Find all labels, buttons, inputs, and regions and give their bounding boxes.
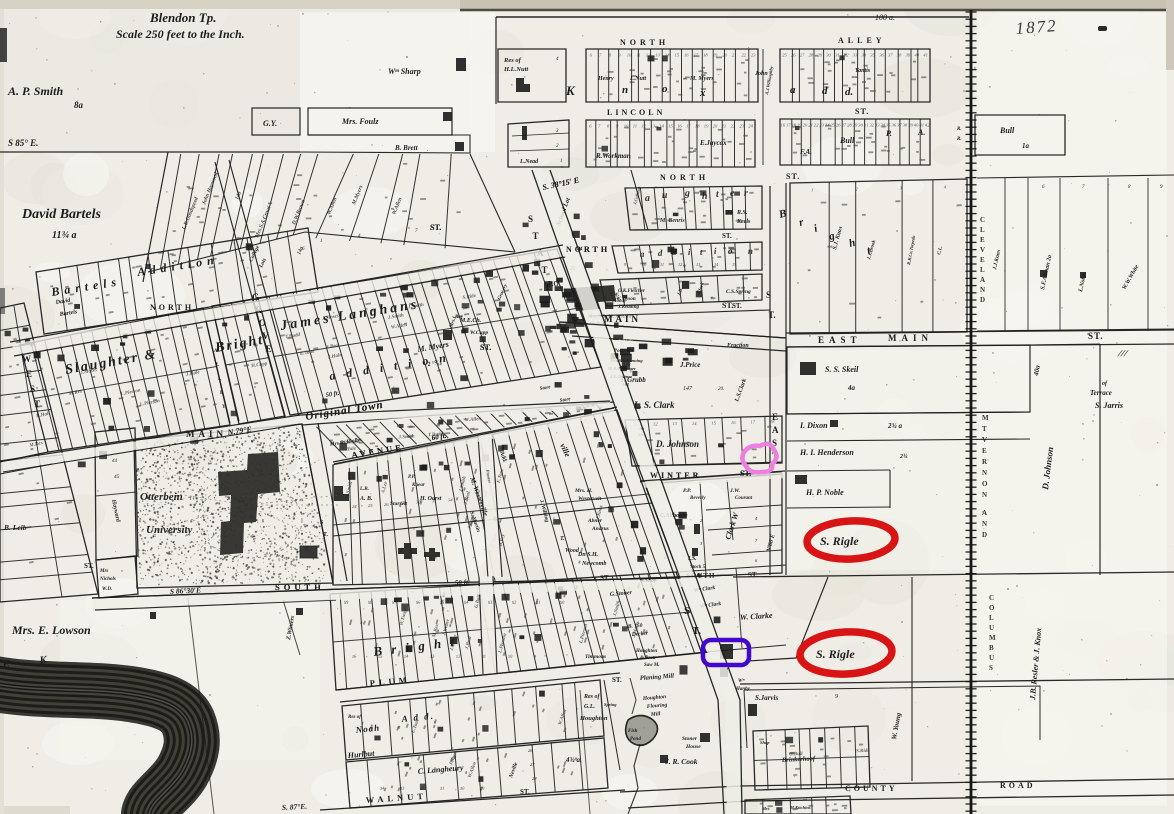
svg-text:28: 28 [532, 776, 537, 781]
svg-text:C.S.Spring: C.S.Spring [726, 289, 751, 295]
svg-text:u: u [662, 190, 668, 201]
svg-text:31: 31 [440, 786, 445, 791]
svg-text:S. Rigle: S. Rigle [820, 534, 859, 548]
svg-text:1: 1 [811, 188, 813, 193]
svg-text:32: 32 [869, 122, 874, 127]
svg-text:J.W.: J.W. [729, 488, 740, 494]
svg-text:Shop: Shop [760, 740, 770, 745]
svg-text:22: 22 [741, 52, 746, 57]
svg-text:Houghton: Houghton [635, 649, 657, 654]
svg-text:36: 36 [892, 122, 897, 127]
svg-text:35: 35 [464, 496, 469, 501]
svg-text:23: 23 [751, 52, 756, 57]
svg-text:2¾ a: 2¾ a [887, 422, 903, 430]
svg-text:Mrs. Foulz: Mrs. Foulz [341, 117, 379, 126]
svg-text:MAIN: MAIN [186, 429, 227, 439]
svg-text:ST.: ST. [855, 107, 869, 116]
svg-text:Terrace: Terrace [1090, 389, 1112, 397]
svg-text:J.Price: J.Price [679, 361, 700, 369]
svg-text:Abner: Abner [587, 518, 603, 524]
svg-text:4a: 4a [847, 384, 856, 392]
svg-text:Spring: Spring [604, 702, 617, 707]
svg-text:T: T [533, 231, 539, 241]
svg-text:E.Jaycox: E.Jaycox [699, 139, 727, 147]
svg-text:33: 33 [853, 52, 858, 57]
svg-text:W. Dyson: W. Dyson [616, 297, 636, 302]
svg-text:H. I. Henderson: H. I. Henderson [799, 448, 854, 457]
svg-text:17: 17 [786, 122, 791, 127]
svg-text:T.: T. [768, 310, 776, 320]
svg-text:12: 12 [653, 422, 658, 427]
svg-text:o: o [662, 83, 668, 95]
svg-text:ST.: ST. [722, 232, 732, 240]
svg-text:22: 22 [814, 122, 819, 127]
svg-text:Houghton: Houghton [579, 715, 608, 722]
svg-text:17: 17 [686, 124, 691, 129]
svg-text:29: 29 [853, 122, 858, 127]
svg-text:40: 40 [914, 122, 919, 127]
svg-text:16: 16 [677, 124, 682, 129]
svg-text:Fish: Fish [628, 729, 638, 734]
svg-text:19: 19 [704, 124, 709, 129]
svg-text:Nichols: Nichols [99, 577, 116, 582]
svg-text:T: T [542, 265, 548, 275]
svg-text:28: 28 [847, 122, 852, 127]
svg-text:g: g [684, 188, 690, 199]
svg-text:ST.: ST. [84, 562, 94, 570]
svg-text:Stoner: Stoner [682, 736, 698, 742]
svg-text:14: 14 [659, 124, 664, 129]
svg-text:M: M [982, 414, 989, 422]
svg-text:32: 32 [844, 52, 849, 57]
svg-text:N: N [982, 520, 987, 528]
svg-text:Mrs. H.: Mrs. H. [574, 488, 593, 494]
svg-text:Bull: Bull [839, 136, 855, 145]
svg-text:18: 18 [703, 52, 708, 57]
svg-text:P.: P. [886, 129, 892, 138]
svg-text:Mrs. E. Lowson: Mrs. E. Lowson [11, 623, 91, 637]
svg-text:MAIN: MAIN [888, 333, 933, 343]
svg-text:x: x [699, 87, 706, 99]
svg-text:24: 24 [352, 504, 357, 509]
svg-text:S.Rigle: S.Rigle [618, 340, 634, 345]
svg-text:28: 28 [809, 52, 814, 57]
svg-text:L.Nutt: L.Nutt [629, 76, 647, 82]
svg-text:19: 19 [713, 52, 718, 57]
svg-text:36: 36 [879, 52, 884, 57]
svg-text:ROAD: ROAD [1000, 781, 1036, 790]
svg-text:37: 37 [888, 52, 893, 57]
svg-text:S 85° E.: S 85° E. [8, 138, 38, 148]
svg-text:B. Leib: B. Leib [3, 523, 27, 532]
svg-text:Res of: Res of [583, 694, 601, 700]
svg-text:13: 13 [696, 262, 700, 267]
svg-text:26: 26 [528, 748, 533, 753]
svg-text:Westervelt: Westervelt [578, 496, 602, 502]
svg-text:A: A [772, 425, 779, 435]
svg-text:25: 25 [782, 52, 787, 57]
svg-text:18: 18 [695, 124, 700, 129]
svg-text:G.L.: G.L. [584, 704, 595, 710]
svg-text:38: 38 [897, 52, 902, 57]
svg-text:H.L.Nutt: H.L.Nutt [503, 66, 528, 73]
svg-text:L: L [980, 266, 985, 274]
svg-text:ST.: ST. [732, 302, 742, 310]
svg-text:K: K [565, 83, 576, 98]
svg-text:Knear: Knear [411, 483, 425, 488]
svg-text:1872: 1872 [1015, 16, 1058, 38]
svg-text:40: 40 [915, 52, 920, 57]
svg-text:S. S. Skeil: S. S. Skeil [825, 365, 859, 374]
svg-text:SOUTH: SOUTH [275, 582, 325, 592]
svg-text:26: 26 [384, 502, 389, 507]
svg-text:16: 16 [781, 122, 786, 127]
svg-text:David Bartels: David Bartels [21, 207, 101, 222]
svg-text:23: 23 [739, 124, 744, 129]
svg-text:B. Brett: B. Brett [394, 144, 419, 152]
svg-text:ST.: ST. [600, 574, 610, 582]
svg-text:MAIN: MAIN [604, 314, 641, 324]
svg-text:9: 9 [835, 694, 838, 700]
svg-text:33: 33 [875, 122, 880, 127]
svg-text:E: E [982, 447, 987, 455]
svg-text:41: 41 [919, 122, 924, 127]
svg-text:Newcomb: Newcomb [581, 561, 606, 567]
svg-text:Yantis: Yantis [855, 68, 871, 74]
svg-text:J.Redding: J.Redding [617, 305, 639, 310]
svg-text:G.Y.: G.Y. [263, 119, 277, 128]
svg-text:14: 14 [692, 421, 697, 426]
svg-text:Andrus: Andrus [591, 526, 609, 532]
svg-text:J. R. Cook: J. R. Cook [664, 757, 698, 766]
svg-text:Wᵐ: Wᵐ [738, 679, 745, 684]
svg-text:Starrett: Starrett [390, 501, 408, 507]
svg-text:A. P. Smith: A. P. Smith [7, 84, 63, 98]
svg-text:12: 12 [642, 124, 647, 129]
svg-text:24: 24 [748, 124, 753, 129]
svg-text:John: John [754, 71, 768, 77]
svg-text:d: d [822, 85, 828, 97]
svg-text:16: 16 [731, 420, 736, 425]
svg-text:V: V [980, 246, 985, 254]
svg-text:18: 18 [792, 122, 797, 127]
svg-text:19: 19 [797, 122, 802, 127]
svg-text:L: L [989, 614, 994, 622]
svg-text:T: T [982, 425, 987, 433]
svg-text:D: D [980, 296, 985, 304]
svg-text:n: n [622, 84, 628, 96]
svg-text:31: 31 [835, 52, 840, 57]
svg-text:ST.: ST. [430, 223, 441, 232]
svg-text:COUNTY: COUNTY [845, 784, 898, 793]
svg-text:ST.: ST. [1088, 331, 1104, 341]
svg-text:12: 12 [646, 52, 651, 57]
svg-text:n: n [748, 246, 753, 256]
svg-text:d.: d. [845, 86, 853, 98]
svg-text:27: 27 [842, 122, 847, 127]
svg-text:O: O [982, 480, 988, 488]
svg-text:H. Oarst: H. Oarst [419, 496, 442, 502]
svg-text:Otterbein: Otterbein [140, 491, 183, 503]
svg-text:I. Dixon: I. Dixon [799, 421, 828, 430]
svg-text:EAST: EAST [818, 335, 862, 345]
svg-text:Res of: Res of [348, 715, 362, 720]
svg-text:34: 34 [862, 52, 867, 57]
svg-text:House: House [685, 744, 701, 750]
svg-text:Beverly: Beverly [689, 496, 706, 501]
svg-text:r: r [744, 188, 748, 199]
svg-text:P.P.: P.P. [408, 475, 416, 480]
svg-text:10: 10 [624, 124, 629, 129]
svg-text:34: 34 [448, 497, 453, 502]
svg-text:A. B.: A. B. [359, 496, 373, 502]
svg-text:27: 27 [530, 762, 535, 767]
svg-text:20: 20 [803, 122, 808, 127]
svg-text:ST.: ST. [722, 301, 733, 310]
svg-text:P.P.: P.P. [683, 488, 691, 494]
svg-text:15: 15 [711, 420, 716, 425]
svg-text:A: A [982, 509, 987, 517]
svg-text:L.Nead: L.Nead [519, 159, 539, 165]
svg-text:ST.: ST. [480, 343, 491, 352]
svg-text:S: S [528, 214, 533, 224]
svg-text:1a: 1a [1022, 142, 1030, 150]
svg-text:F.A.: F.A. [800, 148, 812, 156]
svg-text:W.Cupp: W.Cupp [470, 330, 488, 336]
svg-text:ST.: ST. [748, 571, 758, 579]
svg-text:a: a [640, 249, 645, 259]
svg-text:E: E [980, 236, 985, 244]
svg-text:37: 37 [897, 122, 902, 127]
svg-text:38: 38 [903, 122, 908, 127]
svg-text:20.: 20. [718, 387, 724, 392]
svg-text:H. P. Noble: H. P. Noble [805, 488, 844, 497]
svg-text:18: 18 [770, 419, 775, 424]
svg-text:M. Myers: M. Myers [689, 76, 714, 82]
svg-text:h: h [702, 191, 708, 202]
svg-text:N: N [980, 286, 985, 294]
svg-text:U: U [989, 654, 994, 662]
svg-text:D. Johnson: D. Johnson [655, 439, 699, 449]
svg-text:T.: T. [560, 536, 565, 542]
svg-text:a: a [645, 193, 650, 204]
svg-text:NORTH: NORTH [620, 38, 669, 47]
svg-text:S.Jarvis: S.Jarvis [755, 694, 778, 702]
svg-text:30: 30 [858, 122, 863, 127]
svg-text:10: 10 [627, 52, 632, 57]
svg-text:147: 147 [683, 385, 693, 392]
svg-text:Courant: Courant [735, 496, 753, 501]
svg-text:21: 21 [808, 122, 813, 127]
svg-text:ALLEY: ALLEY [838, 36, 886, 45]
svg-text:2¾: 2¾ [899, 454, 908, 460]
svg-text:R.S.: R.S. [736, 210, 748, 216]
svg-text:23: 23 [819, 122, 824, 127]
svg-text:Y: Y [222, 405, 226, 410]
svg-text:S: S [989, 664, 993, 672]
svg-text:S. Rigle: S. Rigle [816, 647, 855, 661]
svg-text:26: 26 [836, 122, 841, 127]
svg-text:11: 11 [660, 262, 664, 267]
svg-text:N: N [982, 469, 987, 477]
svg-text:R.: R. [957, 137, 962, 142]
svg-text:Keels: Keels [736, 219, 751, 225]
svg-text:Mrs: Mrs [99, 569, 108, 574]
svg-text:31: 31 [864, 122, 869, 127]
svg-text:Saw M.: Saw M. [644, 663, 660, 668]
svg-text:17: 17 [694, 52, 699, 57]
svg-text:ST.: ST. [520, 788, 530, 796]
svg-text:Wᵐ Sharp: Wᵐ Sharp [388, 67, 421, 76]
svg-text:13: 13 [650, 124, 655, 129]
svg-text:Scale 250 feet to the Inch.: Scale 250 feet to the Inch. [116, 27, 245, 41]
svg-text:26: 26 [791, 52, 796, 57]
svg-text:O: O [989, 604, 995, 612]
svg-text:44: 44 [112, 459, 118, 464]
svg-text:11: 11 [482, 654, 487, 659]
svg-text:22: 22 [731, 124, 736, 129]
svg-text:15: 15 [668, 124, 673, 129]
svg-text:S. Jarris: S. Jarris [1095, 401, 1123, 410]
svg-text:45: 45 [114, 475, 120, 480]
svg-text:20: 20 [713, 124, 718, 129]
svg-text:R.: R. [957, 127, 962, 132]
svg-text:Henry: Henry [597, 76, 614, 82]
svg-text:21: 21 [732, 52, 737, 57]
svg-text:29: 29 [817, 52, 822, 57]
svg-text:L.B.: L.B. [359, 487, 369, 492]
svg-text:1: 1 [320, 239, 323, 244]
svg-text:25: 25 [368, 503, 373, 508]
svg-text:8a: 8a [74, 100, 84, 110]
svg-text:d: d [672, 247, 677, 257]
svg-text:C: C [980, 216, 985, 224]
svg-text:17: 17 [750, 419, 755, 424]
svg-text:1: 1 [560, 159, 563, 164]
svg-text:35: 35 [886, 122, 891, 127]
svg-text:34: 34 [881, 122, 886, 127]
svg-text:O.K.Fletcher: O.K.Fletcher [618, 289, 645, 294]
svg-text:25: 25 [831, 122, 836, 127]
svg-text:15: 15 [675, 52, 680, 57]
svg-text:W.D.: W.D. [102, 587, 112, 592]
svg-text:D: D [982, 531, 987, 539]
svg-text:4¾ a.: 4¾ a. [565, 756, 582, 764]
svg-text:Dn S.H.: Dn S.H. [577, 552, 599, 558]
svg-text:11¾ a: 11¾ a [52, 230, 76, 241]
svg-text:Bull: Bull [999, 126, 1015, 135]
svg-text:51: 51 [536, 600, 541, 605]
svg-text:University: University [146, 524, 193, 536]
svg-text:A.: A. [917, 128, 925, 137]
svg-text:13: 13 [655, 52, 660, 57]
svg-text:NORTH: NORTH [566, 245, 610, 254]
svg-text:16: 16 [684, 52, 689, 57]
svg-text:M: M [989, 634, 996, 642]
svg-text:14: 14 [665, 52, 670, 57]
svg-text:M.E.Ch.: M.E.Ch. [459, 318, 482, 324]
svg-text:Fraction: Fraction [727, 343, 749, 349]
svg-text:21: 21 [722, 124, 727, 129]
svg-text:Mrs: Mrs [761, 806, 770, 811]
svg-text:L: L [980, 226, 985, 234]
svg-text:39: 39 [906, 52, 911, 57]
svg-text:a: a [790, 84, 796, 96]
svg-text:20: 20 [722, 52, 727, 57]
svg-text:11: 11 [633, 124, 637, 129]
svg-text:S. 87°E.: S. 87°E. [282, 802, 308, 812]
svg-text:100 a.: 100 a. [875, 13, 895, 22]
svg-text:35: 35 [870, 52, 875, 57]
svg-text:M.Kitchins: M.Kitchins [789, 805, 811, 810]
svg-text:Blendon Tp.: Blendon Tp. [149, 10, 216, 25]
svg-text:R.Workman: R.Workman [595, 152, 631, 160]
svg-text:LINCOLN: LINCOLN [607, 108, 665, 117]
svg-text:Pond: Pond [630, 737, 641, 742]
svg-text:11: 11 [636, 52, 640, 57]
svg-text:Porter 69: Porter 69 [614, 349, 634, 354]
svg-text:U: U [989, 624, 994, 632]
svg-text:Mill: Mill [650, 711, 661, 718]
svg-text:27: 27 [800, 52, 805, 57]
svg-text:13: 13 [672, 421, 677, 426]
svg-text:24: 24 [825, 122, 830, 127]
svg-text:30: 30 [826, 52, 831, 57]
svg-text:Res of: Res of [503, 57, 522, 64]
svg-text:42: 42 [925, 122, 930, 127]
svg-text:A: A [980, 276, 985, 284]
svg-text:E: E [980, 256, 985, 264]
svg-text:o: o [728, 246, 733, 256]
svg-text:41: 41 [923, 52, 928, 57]
svg-text:C: C [989, 594, 994, 602]
svg-text:WINTER: WINTER [650, 471, 701, 480]
svg-text:E: E [1, 658, 11, 671]
svg-text:M. Benris: M. Benris [659, 218, 685, 224]
svg-text:V: V [982, 436, 987, 444]
svg-text:Timmons: Timmons [585, 654, 606, 660]
svg-text:S.Ride: S.Ride [856, 749, 870, 755]
svg-text:ST.: ST. [612, 676, 622, 684]
svg-text:39: 39 [908, 122, 913, 127]
svg-text:B: B [989, 644, 994, 652]
svg-text:ST.: ST. [786, 172, 800, 181]
svg-text:N: N [982, 491, 987, 499]
svg-text:NORTH: NORTH [660, 173, 709, 182]
svg-text:d: d [658, 248, 663, 258]
